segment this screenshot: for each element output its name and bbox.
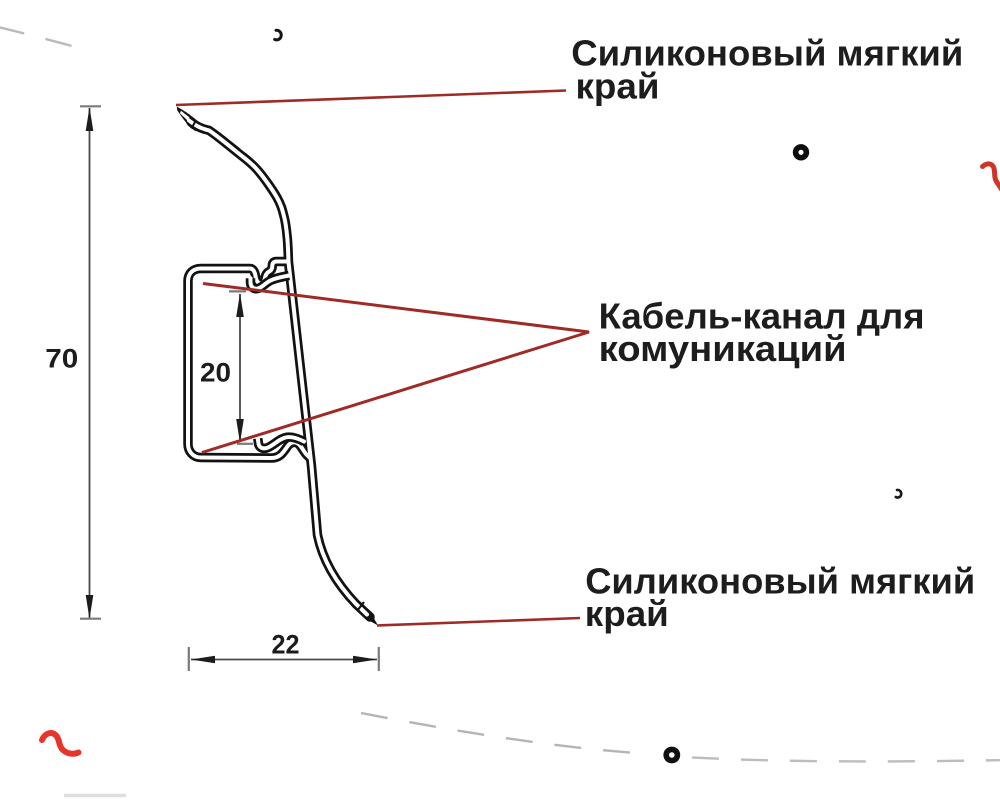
svg-text:край: край [576, 66, 660, 107]
svg-text:22: 22 [272, 630, 300, 660]
svg-text:комуникаций: комуникаций [599, 328, 847, 369]
svg-text:край: край [585, 593, 669, 634]
svg-text:20: 20 [200, 358, 231, 388]
svg-text:70: 70 [45, 344, 78, 374]
